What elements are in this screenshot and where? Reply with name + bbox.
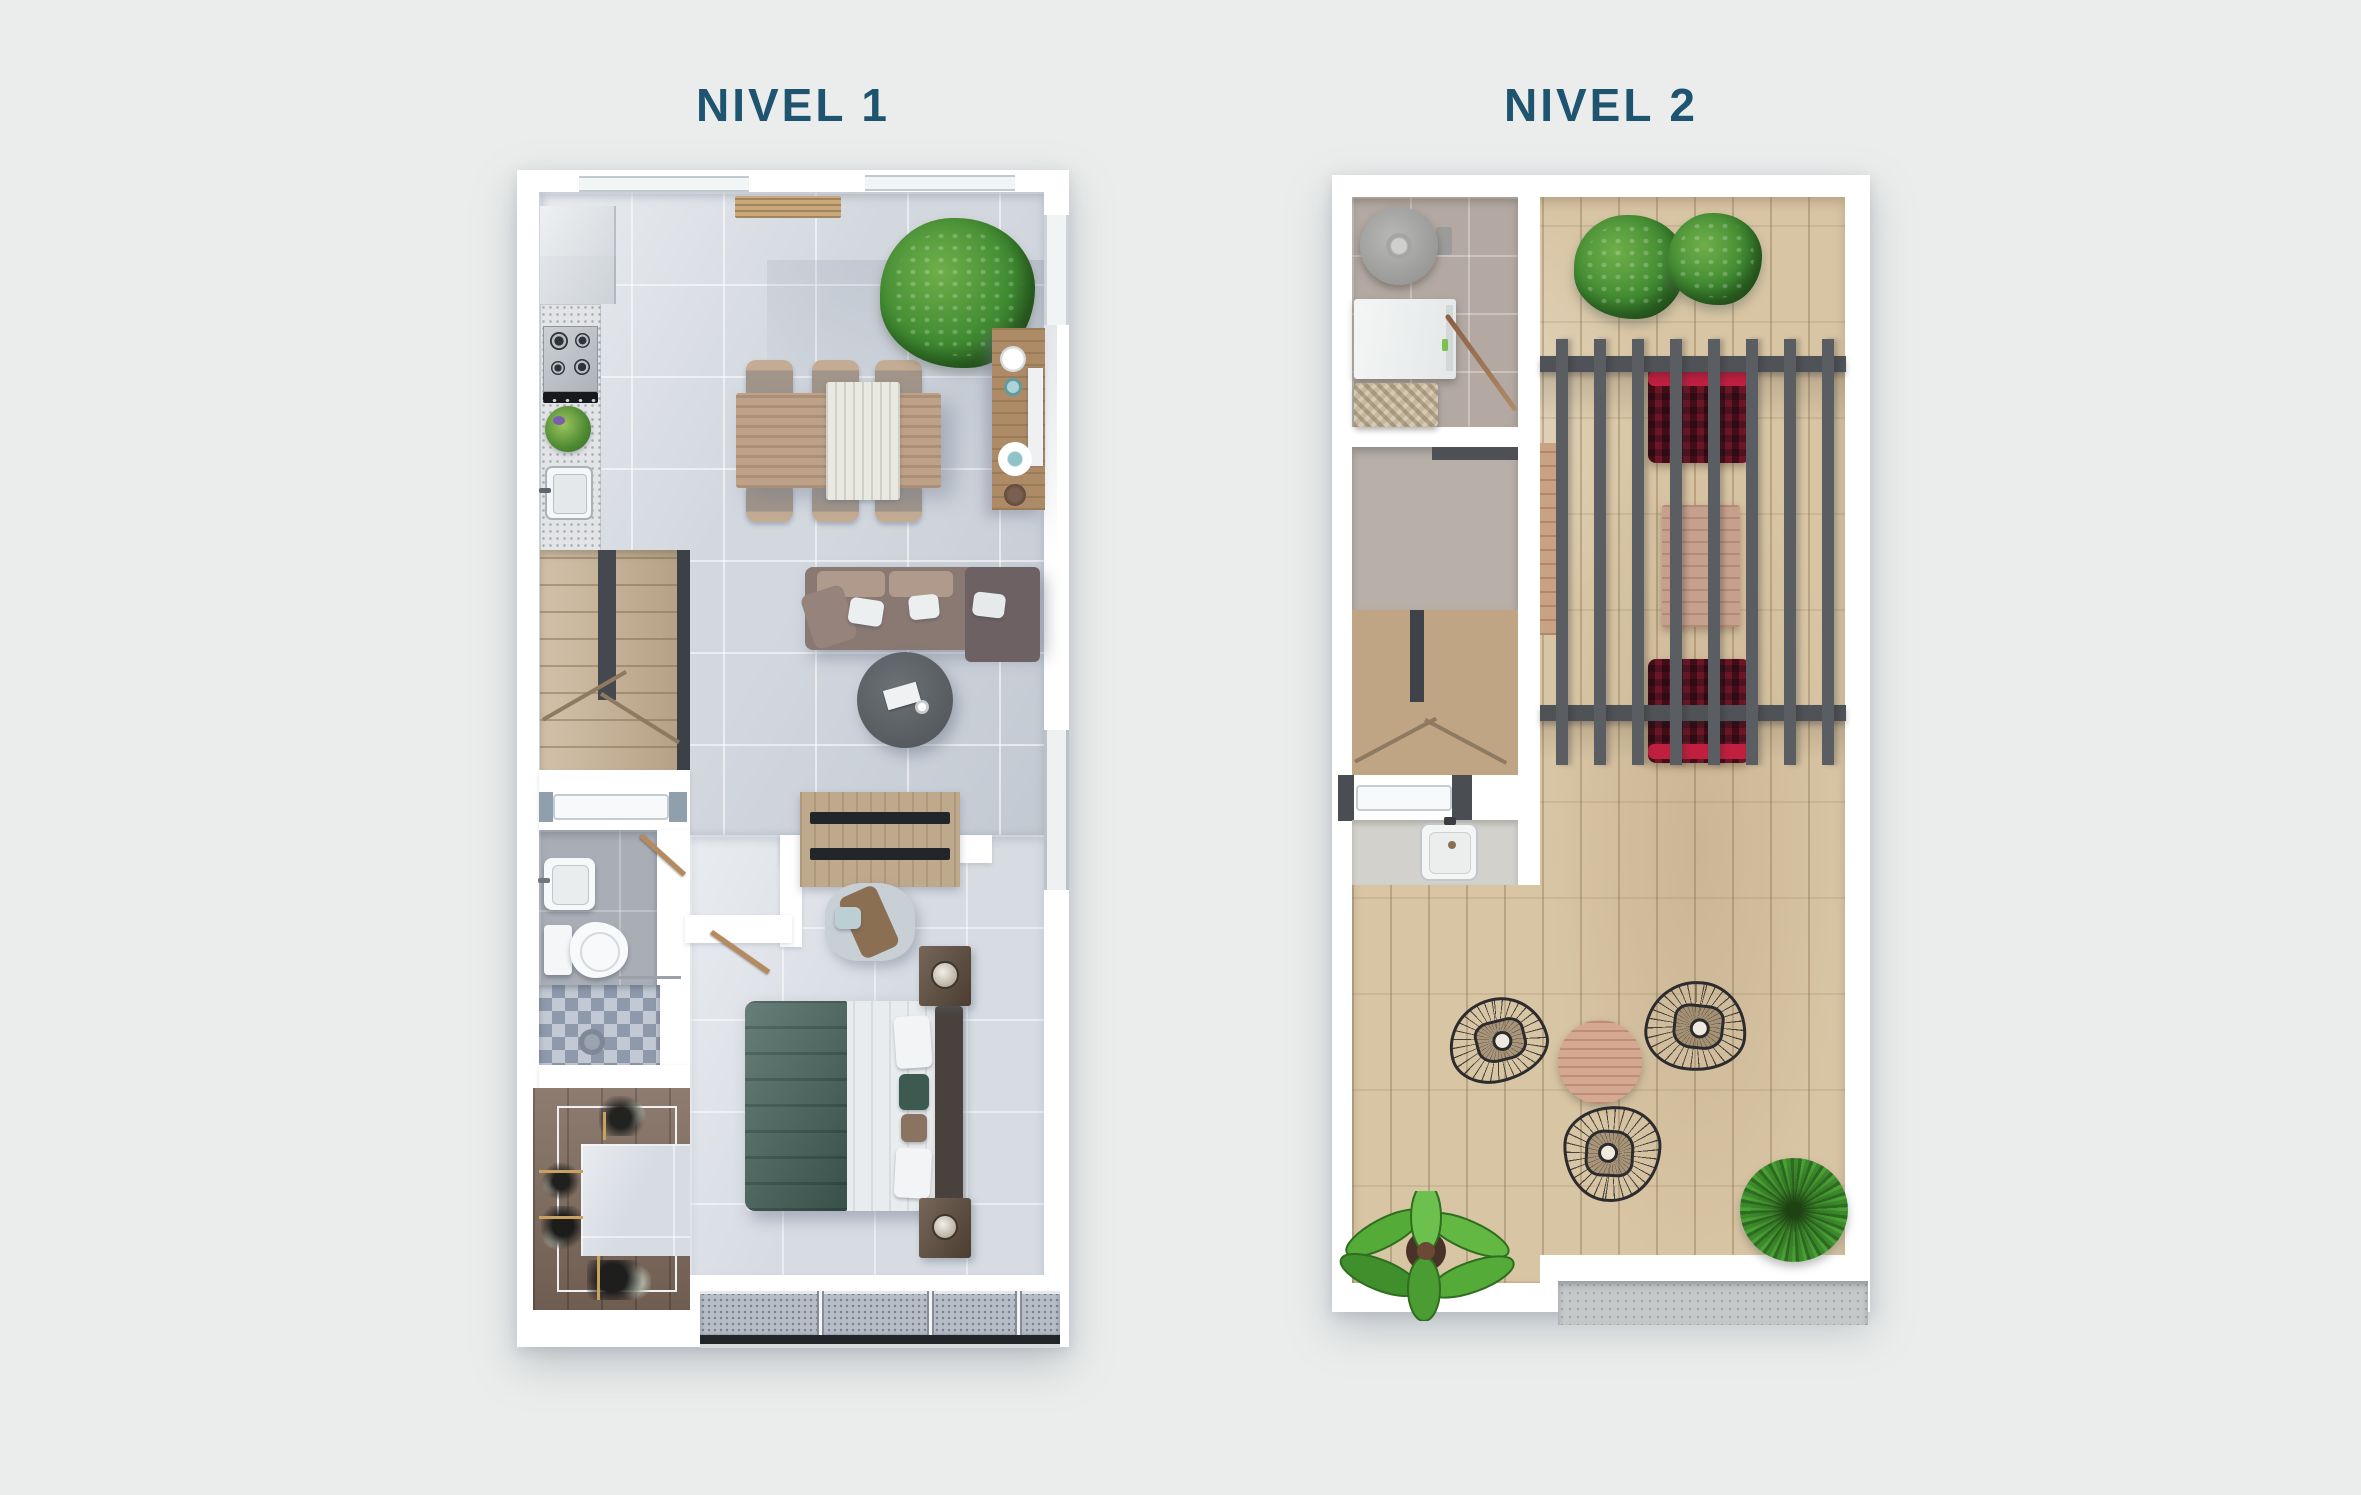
- sink-basin: [553, 474, 587, 514]
- hanging-clothes: [599, 1096, 647, 1136]
- hanging-clothes: [541, 1206, 581, 1250]
- pergola-slat: [1594, 339, 1606, 765]
- pergola-slat: [1784, 339, 1796, 765]
- closet-rod: [597, 1256, 600, 1300]
- stair-stringer: [1410, 610, 1424, 702]
- pergola-slat: [1556, 339, 1568, 765]
- bed-pillow: [893, 1015, 933, 1069]
- washer-indicator: [1442, 339, 1448, 351]
- sink-faucet: [539, 488, 551, 493]
- sink-basin: [1429, 832, 1471, 874]
- window-shelf: [735, 196, 841, 218]
- refrigerator: [540, 206, 616, 256]
- closet-rod: [539, 1170, 583, 1173]
- upper-staircase: [1352, 610, 1518, 775]
- stair-opening-edge: [1432, 447, 1518, 460]
- pergola-slat: [1708, 339, 1720, 765]
- slider-outer-trim: [700, 1344, 1060, 1348]
- kitchen-window: [579, 176, 749, 192]
- drum-handle: [1436, 227, 1452, 255]
- terrace-door: [1356, 785, 1452, 811]
- terrace-bush-plant: [1668, 213, 1762, 305]
- closet-inner-floor: [581, 1144, 690, 1256]
- pergola-slat: [1632, 339, 1644, 765]
- sofa-pillow: [972, 591, 1007, 619]
- terrace-doorpost: [1338, 775, 1354, 821]
- pergola-beam: [1540, 705, 1846, 721]
- counter-plant: [545, 406, 591, 452]
- toilet-tank: [544, 925, 572, 975]
- bedroom-armchair: [825, 883, 915, 961]
- pergola-slat: [1670, 339, 1682, 765]
- staircase: [540, 550, 690, 775]
- sink-basin: [552, 865, 589, 905]
- outdoor-sink: [1420, 823, 1478, 881]
- kitchen-cabinet: [540, 256, 616, 304]
- outdoor-sink-counter: [1352, 820, 1518, 885]
- towel-rail: [617, 976, 681, 979]
- sofa-pillow: [908, 593, 940, 620]
- stair-landing-seam: [1354, 717, 1437, 764]
- burner: [574, 359, 590, 375]
- pergola-beam: [1540, 356, 1846, 372]
- spiky-plant: [1740, 1158, 1848, 1262]
- slider-track-post: [817, 1291, 824, 1337]
- sink-drain: [1448, 841, 1456, 849]
- table-runner-cloth: [826, 382, 900, 500]
- toilet-seat: [580, 932, 620, 972]
- console-sideboard: [992, 328, 1045, 510]
- slider-frame: [700, 1335, 1060, 1344]
- decor-plate: [1000, 346, 1026, 372]
- burner: [575, 333, 590, 348]
- kitchen-sink: [545, 466, 593, 520]
- table-lamp: [931, 961, 959, 989]
- stair-landing-seam: [1424, 718, 1507, 765]
- dining-window: [865, 175, 1015, 191]
- level2-title: NIVEL 2: [1332, 78, 1870, 138]
- stove-control-panel: [543, 392, 598, 403]
- laundry-basket-drum: [1360, 207, 1438, 285]
- sofa: [805, 567, 1040, 650]
- stove-cooktop: [543, 326, 598, 392]
- side-window-glass: [1044, 215, 1069, 325]
- slider-track-post: [927, 1291, 934, 1337]
- nightstand: [919, 1198, 971, 1258]
- drum-lid-knob: [1386, 233, 1412, 259]
- bathroom-doorpost: [669, 792, 687, 822]
- armchair-pillow: [835, 907, 861, 929]
- balcony-door-glass: [1044, 730, 1069, 890]
- banana-plant: [1336, 1191, 1516, 1321]
- bed-accent-pillow: [901, 1114, 927, 1142]
- bed-duvet: [745, 1001, 847, 1211]
- table-lamp: [932, 1214, 958, 1240]
- nightstand: [919, 946, 971, 1006]
- stair-hall-floor: [1352, 447, 1518, 610]
- bed-headboard: [935, 1006, 963, 1206]
- faucet: [538, 878, 550, 883]
- closet-wall: [539, 1065, 690, 1090]
- washing-machine: [1354, 299, 1456, 379]
- level2-floorplan: [1332, 175, 1870, 1312]
- bedroom-entry-wall: [685, 915, 792, 943]
- terrace-round-table: [1558, 1020, 1642, 1104]
- balcony-sill: [700, 1291, 1060, 1337]
- bathroom-doorpost: [539, 792, 553, 822]
- dining-chair: [746, 360, 793, 396]
- floorplan-image: NIVEL 1 NIVEL 2: [0, 0, 2361, 1495]
- closet-rod: [603, 1112, 606, 1140]
- concrete-ledge: [1558, 1281, 1868, 1325]
- tv-bedroom-side: [810, 848, 950, 860]
- laundry-room-floor: [1352, 197, 1518, 427]
- pergola-slat: [1822, 339, 1834, 765]
- stair-landing-seam: [600, 692, 680, 744]
- decor-bowl: [998, 442, 1032, 476]
- terrace-doorpost: [1452, 775, 1472, 821]
- slider-track-post: [1015, 1291, 1022, 1337]
- burner: [551, 361, 565, 375]
- level1-floorplan: [517, 170, 1069, 1347]
- lounger-cushion: [1648, 367, 1750, 463]
- coffee-table-cup: [915, 700, 929, 714]
- walk-in-closet: [533, 1088, 690, 1310]
- flower-accent: [553, 416, 565, 425]
- coffee-table: [857, 652, 953, 748]
- burner: [550, 332, 568, 350]
- dining-chair: [746, 486, 793, 522]
- pergola-slat: [1746, 339, 1758, 765]
- bed-pillow: [894, 1147, 933, 1199]
- double-sided-tv-console: [800, 792, 960, 887]
- faucet: [1444, 817, 1456, 825]
- lounger-headrest: [1648, 371, 1750, 386]
- bathroom-door: [553, 794, 669, 820]
- decor-cup: [1004, 378, 1022, 396]
- hanging-clothes: [541, 1162, 581, 1200]
- lounger-footrest: [1648, 744, 1750, 759]
- shower-drain: [579, 1029, 605, 1055]
- closet-rod: [539, 1216, 583, 1219]
- bed-accent-pillow: [899, 1074, 929, 1110]
- wicker-basket: [1354, 383, 1438, 427]
- sofa-back-cushion: [889, 571, 953, 597]
- bathroom-sink: [544, 858, 595, 910]
- level1-title: NIVEL 1: [517, 78, 1069, 138]
- decor-vase: [1004, 484, 1026, 506]
- hanging-clothes: [587, 1260, 651, 1300]
- shower-mosaic-floor: [539, 985, 660, 1065]
- sofa-pillow: [847, 597, 885, 628]
- tv-living-side: [810, 812, 950, 824]
